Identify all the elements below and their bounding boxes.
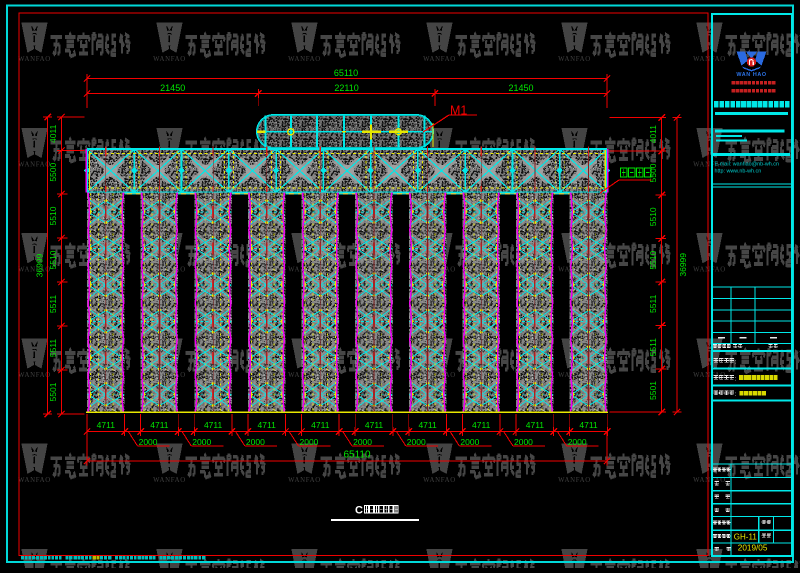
svg-text:2000: 2000 [300, 437, 319, 447]
svg-text:36999: 36999 [35, 253, 45, 277]
svg-text:4711: 4711 [311, 420, 330, 430]
svg-text:2000: 2000 [353, 437, 372, 447]
svg-text:C: C [355, 505, 363, 517]
svg-text:4711: 4711 [418, 420, 437, 430]
svg-text:5511: 5511 [48, 295, 58, 314]
svg-text:4711: 4711 [97, 420, 116, 430]
svg-text:5510: 5510 [648, 250, 658, 269]
svg-text:65110: 65110 [334, 68, 358, 78]
svg-text:4711: 4711 [365, 420, 384, 430]
svg-text:2019/05: 2019/05 [738, 543, 768, 552]
svg-text:5510: 5510 [48, 206, 58, 225]
svg-text:21450: 21450 [508, 83, 533, 93]
svg-text:2000: 2000 [192, 437, 211, 447]
svg-text:4711: 4711 [472, 420, 491, 430]
svg-text:4711: 4711 [150, 420, 169, 430]
svg-text:M1: M1 [450, 104, 467, 118]
svg-text:http: www.nb-wh.cn: http: www.nb-wh.cn [715, 169, 762, 175]
svg-text:2000: 2000 [246, 437, 265, 447]
svg-text:4011: 4011 [48, 124, 58, 143]
svg-text:2000: 2000 [514, 437, 533, 447]
svg-text:22110: 22110 [334, 83, 358, 93]
svg-text:5510: 5510 [648, 207, 658, 226]
svg-text:2000: 2000 [568, 437, 587, 447]
svg-text:5511: 5511 [648, 294, 658, 313]
svg-text:GH-11: GH-11 [734, 532, 758, 541]
svg-text:4011: 4011 [648, 125, 658, 144]
svg-text:WAN HAO: WAN HAO [736, 72, 766, 78]
svg-text:21450: 21450 [160, 83, 185, 93]
svg-text:4711: 4711 [204, 420, 223, 430]
svg-text:2000: 2000 [407, 437, 426, 447]
svg-text:65110: 65110 [343, 450, 371, 461]
svg-text:5510: 5510 [48, 250, 58, 269]
svg-text:4711: 4711 [258, 420, 277, 430]
svg-text:5511: 5511 [48, 339, 58, 358]
svg-text:5501: 5501 [648, 381, 658, 400]
svg-text:2000: 2000 [460, 437, 479, 447]
svg-text:36999: 36999 [678, 253, 688, 277]
svg-text:5511: 5511 [648, 338, 658, 357]
svg-text:4711: 4711 [579, 420, 598, 430]
svg-text:E-mail: wanhao@nb-wh.cn: E-mail: wanhao@nb-wh.cn [715, 162, 780, 168]
svg-text:5501: 5501 [48, 382, 58, 401]
svg-text:2000: 2000 [139, 437, 158, 447]
svg-text:5500: 5500 [48, 162, 58, 181]
svg-text:4711: 4711 [526, 420, 545, 430]
